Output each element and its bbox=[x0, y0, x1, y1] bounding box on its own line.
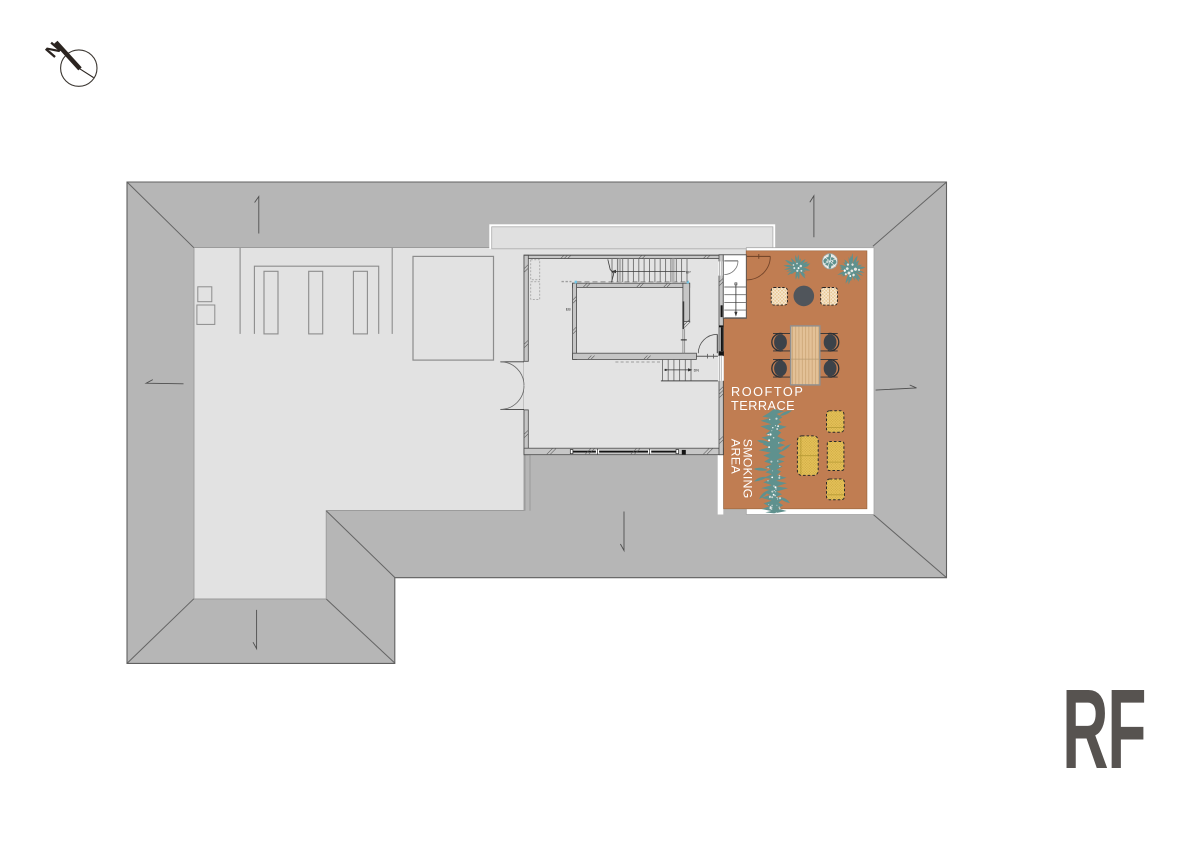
svg-text:EB: EB bbox=[566, 307, 571, 311]
svg-text:AREA: AREA bbox=[728, 439, 742, 475]
svg-text:DN: DN bbox=[694, 368, 700, 372]
svg-text:TERRACE: TERRACE bbox=[731, 399, 795, 413]
svg-text:UP: UP bbox=[686, 270, 692, 274]
svg-text:RF: RF bbox=[1062, 667, 1145, 793]
svg-text:N: N bbox=[41, 38, 65, 61]
svg-text:ROOFTOP: ROOFTOP bbox=[731, 385, 804, 399]
